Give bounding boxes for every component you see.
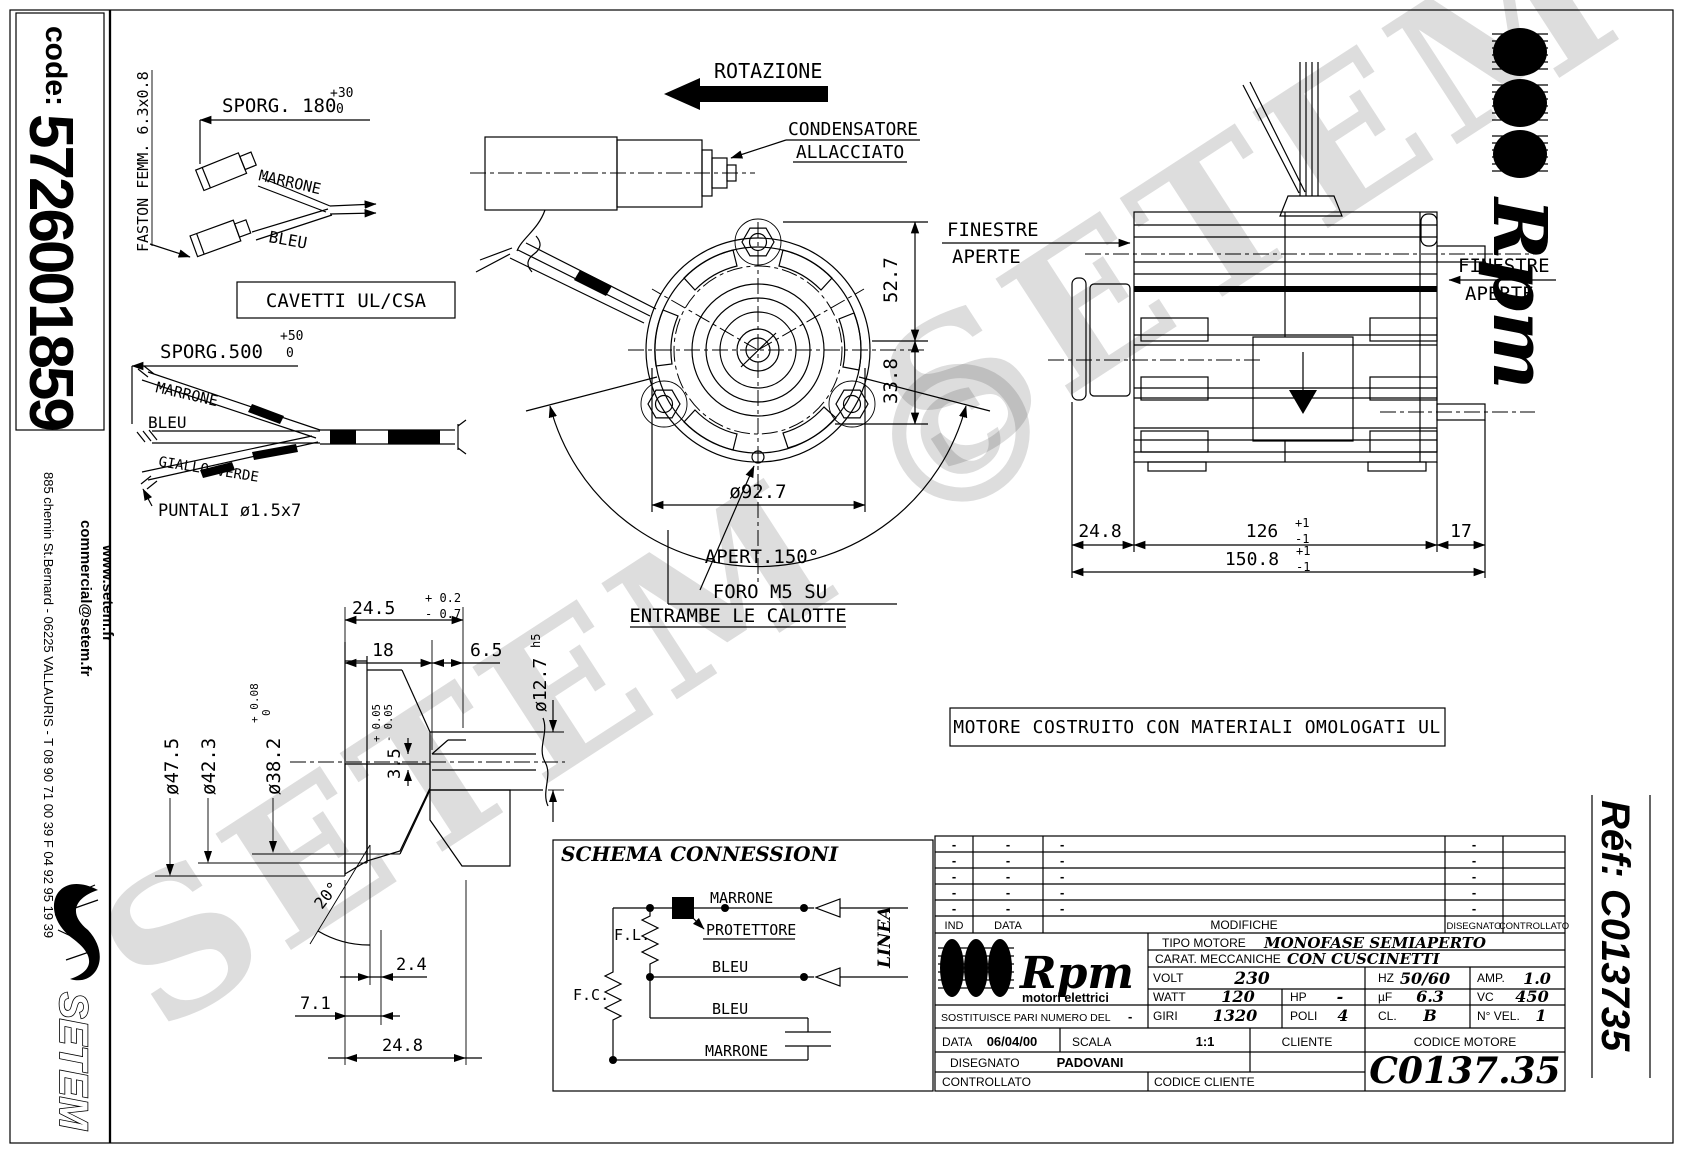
rev-dash: - xyxy=(1006,837,1010,852)
hz-value: 50/60 xyxy=(1400,969,1450,988)
dim-150-8-tol-minus: -1 xyxy=(1296,560,1310,574)
schema-bleu-mid: BLEU xyxy=(712,958,748,976)
ref-code: Réf: C013735 xyxy=(1593,800,1637,1052)
linea-connector-bottom xyxy=(816,968,840,986)
scala-label: SCALA xyxy=(1072,1035,1111,1049)
faston-label: FASTON FEMM. 6.3x0.8 xyxy=(134,71,152,252)
condensatore-label-1: CONDENSATORE xyxy=(788,119,918,140)
website: www.setem.fr xyxy=(99,544,116,642)
header-modifiche: MODIFICHE xyxy=(1210,918,1277,932)
wire-marrone-label: MARRONE xyxy=(257,166,323,198)
sostituisce-value: - xyxy=(1128,1009,1132,1024)
hp-value: - xyxy=(1337,987,1344,1006)
code-label: code: xyxy=(39,26,72,106)
dia-47-5: ø47.5 xyxy=(161,738,183,795)
rev-dash: - xyxy=(1472,837,1476,852)
fc-resistor xyxy=(605,966,621,1060)
cable-drawing-top: SPORG. 180 +30 0 FASTON FEMM. 6.3x0.8 MA… xyxy=(134,70,455,318)
dim-3-5-tol-minus: - 0.05 xyxy=(383,704,395,742)
aperte-left-label: APERTE xyxy=(952,246,1021,268)
schema-connessioni: SCHEMA CONNESSIONI xyxy=(553,840,933,1091)
dim-126-tol-plus: +1 xyxy=(1295,516,1309,530)
rev-dash: - xyxy=(1006,901,1010,916)
controllato-label: CONTROLLATO xyxy=(942,1075,1031,1089)
cavetti-box-label: CAVETTI UL/CSA xyxy=(266,290,427,312)
drawing-sheet: SETEM © SETEM © code: 5726001859 885 che… xyxy=(0,0,1683,1153)
dim-52-7: 52.7 xyxy=(880,257,902,303)
rev-dash: - xyxy=(1006,853,1010,868)
sporg-500-tol-minus: 0 xyxy=(286,346,294,361)
cable-drawing-mid: SPORG.500 +50 0 MARRONE BLEU GIALLO-VERD… xyxy=(132,329,466,521)
dim-33-8: 33.8 xyxy=(880,358,902,404)
giri-value: 1320 xyxy=(1213,1006,1258,1025)
wire-marrone2-label: MARRONE xyxy=(154,378,220,410)
poli-value: 4 xyxy=(1337,1006,1348,1025)
rev-dash: - xyxy=(1006,869,1010,884)
dia-12-7-h5: h5 xyxy=(529,634,543,648)
watt-value: 120 xyxy=(1221,987,1254,1006)
amp-value: 1.0 xyxy=(1523,969,1551,988)
disegnato-label: DISEGNATO xyxy=(950,1056,1020,1070)
schema-fl: F.L. xyxy=(614,926,650,944)
rev-dash: - xyxy=(1060,853,1064,868)
dia-38-2: ø38.2 xyxy=(263,738,285,795)
bolt-left xyxy=(641,381,687,427)
puntali-label: PUNTALI ø1.5x7 xyxy=(158,501,301,521)
rev-dash: - xyxy=(1060,869,1064,884)
dim-2-4: 2.4 xyxy=(396,955,427,975)
dim-150-8-tol-plus: +1 xyxy=(1296,544,1310,558)
address: 885 chemin St.Bernard - 06225 VALLAURIS … xyxy=(41,472,56,938)
rotazione-label: ROTAZIONE xyxy=(714,59,822,83)
capacitor-drawing: CONDENSATORE ALLACCIATO xyxy=(470,119,920,323)
email: commercial@setem.fr xyxy=(77,520,94,677)
volt-label: VOLT xyxy=(1153,971,1184,985)
dim-150-8: 150.8 xyxy=(1225,549,1279,570)
rpm-logo-titleblock: Rpm motori elettrici xyxy=(938,939,1134,1005)
data-label: DATA xyxy=(942,1035,972,1049)
apert-label: APERT.150° xyxy=(705,546,819,568)
dia-12-7: ø12.7 xyxy=(530,658,551,712)
rpm-logo-icon xyxy=(1492,28,1548,178)
dia-38-2-tol-plus: + 0.08 xyxy=(248,683,261,723)
nvel-value: 1 xyxy=(1535,1006,1546,1025)
schema-protettore: PROTETTORE xyxy=(706,921,796,939)
schema-marrone-bottom: MARRONE xyxy=(705,1042,768,1060)
title-block: - - - - - - - - - - - - - - - - - - - - … xyxy=(935,836,1569,1092)
watt-label: WATT xyxy=(1153,990,1186,1004)
dim-24-5-tol-minus: - 0.7 xyxy=(425,607,461,621)
disegnato-value: PADOVANI xyxy=(1057,1055,1124,1070)
dim-126: 126 xyxy=(1246,521,1279,542)
sporg-180-label: SPORG. 180 xyxy=(222,95,336,117)
volt-value: 230 xyxy=(1233,969,1270,989)
rotation-arrow: ROTAZIONE xyxy=(664,59,828,110)
schema-bleu-low: BLEU xyxy=(712,1000,748,1018)
tipo-label: TIPO MOTORE xyxy=(1162,936,1246,950)
linea-connector-top xyxy=(816,899,840,917)
sporg-500-tol-plus: +50 xyxy=(280,329,303,344)
poli-label: POLI xyxy=(1290,1009,1317,1023)
data-value: 06/04/00 xyxy=(987,1034,1038,1049)
dim-18: 18 xyxy=(372,640,394,661)
rev-dash: - xyxy=(1060,837,1064,852)
ul-note-text: MOTORE COSTRUITO CON MATERIALI OMOLOGATI… xyxy=(953,717,1441,738)
faston-connector-2 xyxy=(190,216,252,257)
faston-connector-1 xyxy=(196,148,258,190)
rev-dash: - xyxy=(952,885,956,900)
finestre-left-label: FINESTRE xyxy=(947,219,1039,241)
dim-24-5: 24.5 xyxy=(352,598,395,619)
dim-24-5-tol-plus: + 0.2 xyxy=(425,591,461,605)
codice-motore-label: CODICE MOTORE xyxy=(1414,1035,1516,1049)
header-ind: IND xyxy=(945,920,964,932)
hz-label: HZ xyxy=(1378,971,1394,985)
header-disegnato: DISEGNATO xyxy=(1446,921,1501,932)
hp-label: HP xyxy=(1290,990,1307,1004)
ul-note: MOTORE COSTRUITO CON MATERIALI OMOLOGATI… xyxy=(950,708,1445,746)
schema-fc: F.C. xyxy=(573,986,609,1004)
wire-bleu2-label: BLEU xyxy=(148,413,187,432)
cliente-label: CLIENTE xyxy=(1282,1035,1333,1049)
rev-dash: - xyxy=(952,853,956,868)
rev-dash: - xyxy=(1472,901,1476,916)
uf-label: µF xyxy=(1378,990,1392,1004)
dim-24-8-shaft: 24.8 xyxy=(382,1036,423,1056)
vc-label: VC xyxy=(1477,990,1494,1004)
sostituisce-label: SOSTITUISCE PARI NUMERO DEL xyxy=(941,1012,1111,1024)
dim-6-5: 6.5 xyxy=(470,640,503,661)
dim-17: 17 xyxy=(1450,521,1472,542)
rev-dash: - xyxy=(1060,901,1064,916)
dim-24-8-side: 24.8 xyxy=(1078,521,1121,542)
dim-3-5: 3.5 xyxy=(385,748,405,779)
rev-dash: - xyxy=(1472,853,1476,868)
dim-92-7: ø92.7 xyxy=(729,481,786,503)
foro-label-2: ENTRAMBE LE CALOTTE xyxy=(629,605,846,627)
nvel-label: N° VEL. xyxy=(1477,1009,1520,1023)
protettore-symbol xyxy=(672,897,694,919)
rev-dash: - xyxy=(1060,885,1064,900)
dia-42-3: ø42.3 xyxy=(198,738,220,795)
rev-dash: - xyxy=(952,901,956,916)
vc-value: 450 xyxy=(1515,987,1548,1006)
dim-7-1: 7.1 xyxy=(300,994,331,1014)
condensatore-label-2: ALLACCIATO xyxy=(796,142,904,163)
sporg-500-label: SPORG.500 xyxy=(160,341,263,363)
cl-label: CL. xyxy=(1378,1009,1397,1023)
schema-title: SCHEMA CONNESSIONI xyxy=(561,842,839,866)
dia-38-2-tol-minus: 0 xyxy=(260,709,273,716)
airflow-arrow-icon xyxy=(1289,390,1317,414)
wire-bleu-label: BLEU xyxy=(267,227,308,252)
codice-cliente-label: CODICE CLIENTE xyxy=(1154,1075,1255,1089)
rev-dash: - xyxy=(1472,885,1476,900)
cl-value: B xyxy=(1422,1006,1437,1025)
foro-label-1: FORO M5 SU xyxy=(713,581,827,603)
rev-dash: - xyxy=(952,837,956,852)
sporg-180-tol-plus: +30 xyxy=(330,86,353,101)
sporg-180-tol-minus: 0 xyxy=(336,102,344,117)
code-value: 5726001859 xyxy=(16,114,85,430)
header-data: DATA xyxy=(994,920,1022,932)
giri-label: GIRI xyxy=(1153,1009,1178,1023)
codice-motore-value: C0137.35 xyxy=(1369,1050,1560,1092)
rpm-brand-vertical: Rpm xyxy=(1476,196,1562,390)
scala-value: 1:1 xyxy=(1196,1034,1215,1049)
uf-value: 6.3 xyxy=(1416,987,1444,1006)
rpm-tagline: motori elettrici xyxy=(1022,991,1109,1005)
rev-dash: - xyxy=(1472,869,1476,884)
setem-logo-text: SETEM xyxy=(51,992,95,1131)
sidebar: code: 5726001859 885 chemin St.Bernard -… xyxy=(16,13,116,1131)
schema-marrone-top: MARRONE xyxy=(710,889,773,907)
amp-label: AMP. xyxy=(1477,971,1505,985)
dim-3-5-tol-plus: + 0.05 xyxy=(371,704,383,742)
schema-linea: LINEA xyxy=(875,906,895,969)
carat-value: CON CUSCINETTI xyxy=(1287,950,1441,968)
rev-dash: - xyxy=(1006,885,1010,900)
header-controllato: CONTROLLATO xyxy=(1499,921,1569,932)
rev-dash: - xyxy=(952,869,956,884)
carat-label: CARAT. MECCANICHE xyxy=(1155,952,1281,966)
